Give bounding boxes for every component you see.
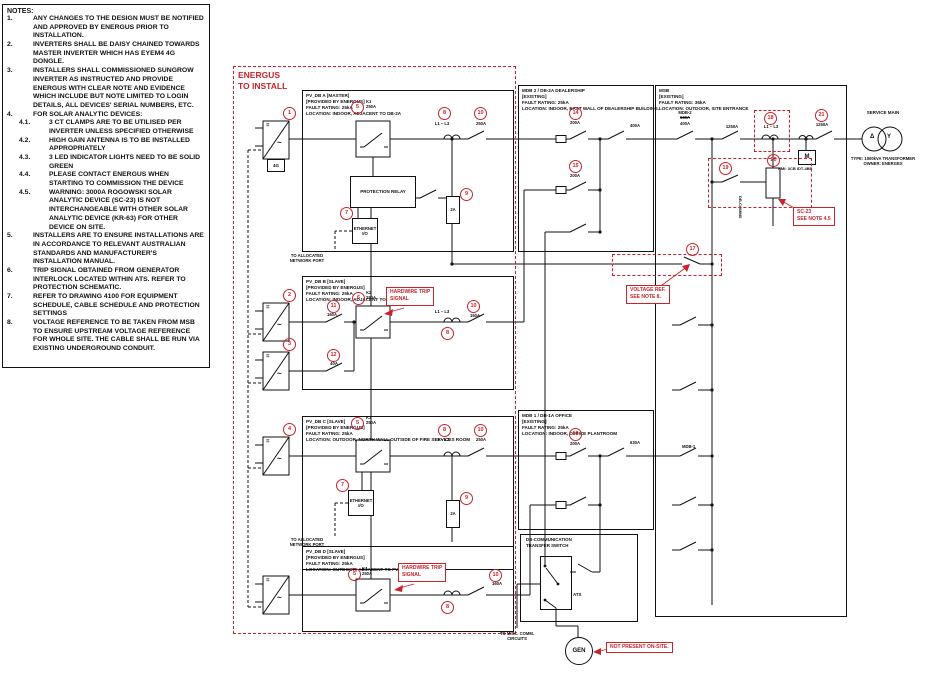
cable-tag: 8 (438, 424, 451, 437)
switch-amp-label: 250A (470, 121, 492, 126)
cable-tag: 6 (352, 292, 365, 305)
note-text: INVERTERS SHALL BE DAISY CHAINED TOWARDS… (33, 41, 205, 67)
dc-glyph: = (266, 354, 270, 360)
note-text: VOLTAGE REFERENCE TO BE TAKEN FROM MSB T… (33, 319, 205, 354)
ethernet-io-box: ETHERNET I/O (348, 490, 374, 516)
cable-tag: 5 (348, 568, 361, 581)
board-location: LOCATION: INDOOR, EAST WALL OF DEALERSHI… (522, 106, 659, 112)
wye-winding-glyph: Y (887, 134, 891, 140)
ac-glyph: ~ (277, 593, 282, 602)
ats-inner-box (540, 556, 572, 610)
ethernet-io-box: ETHERNET I/O (352, 218, 378, 244)
note-text: ANY CHANGES TO THE DESIGN MUST BE NOTIFI… (33, 15, 205, 41)
switch-amp-label: 160A (464, 313, 486, 318)
voltage-ref-callout: VOLTAGE REF.SEE NOTE 8. (626, 285, 670, 304)
switch-amp-label: 160A (486, 581, 508, 586)
hardwire-trip-callout: HARDWIRE TRIPSIGNAL (386, 287, 434, 306)
note-row: 2.INVERTERS SHALL BE DAISY CHAINED TOWAR… (7, 41, 205, 67)
ats-label: ATS (573, 592, 581, 598)
cable-tag: 14 (569, 107, 582, 120)
cable-tag: 7 (336, 479, 349, 492)
aux-fuse-box: 2A (446, 500, 460, 528)
cable-tag: 9 (460, 492, 473, 505)
ct-label: L1 – L3 (430, 309, 454, 314)
note-number: 7. (7, 293, 33, 319)
note-number: 4. (7, 111, 33, 120)
cable-tag: 5 (351, 417, 364, 430)
cable-tag: 10 (474, 424, 487, 437)
switch-amp-label: 160A (321, 312, 343, 317)
note-number: 4.2. (19, 137, 49, 154)
note-text: INSTALLERS ARE TO ENSURE INSTALLATIONS A… (33, 232, 205, 267)
cable-tag: 16 (569, 428, 582, 441)
ct-label: L1 – L3 (430, 121, 454, 126)
note-row: 7.REFER TO DRAWING 4100 FOR EQUIPMENT SC… (7, 293, 205, 319)
note-text: TRIP SIGNAL OBTAINED FROM GENERATOR INTE… (33, 267, 205, 293)
mdb2-header: MDB 2 / DB-2A DEALERSHIP [EXISTING] FAUL… (522, 88, 659, 112)
note-text: HIGH GAIN ANTENNA IS TO BE INSTALLED APP… (49, 137, 205, 154)
4g-dongle: 4G (267, 159, 285, 172)
ac-glyph: ~ (277, 320, 282, 329)
note-row: 6.TRIP SIGNAL OBTAINED FROM GENERATOR IN… (7, 267, 205, 293)
fuse-amp-label: 200A (564, 441, 586, 446)
cable-tag: 15 (569, 160, 582, 173)
note-number: 8. (7, 319, 33, 354)
note-text: FOR SOLAR ANALYTIC DEVICES: (33, 111, 205, 120)
sc23-ct-highlight (754, 110, 790, 152)
fuse-amp-label: 200A (564, 120, 586, 125)
notes-list: 1.ANY CHANGES TO THE DESIGN MUST BE NOTI… (7, 15, 205, 354)
switch-amp-label: 250A (470, 437, 492, 442)
note-number: 2. (7, 41, 33, 67)
cable-tag: 4 (283, 423, 296, 436)
service-main-label: SERVICE MAIN (850, 110, 916, 116)
generator-symbol: GEN (565, 637, 593, 665)
transfer-switch-label: DB-COMMUNICATIONTRANSFER SWITCH (526, 537, 572, 548)
note-number: 1. (7, 15, 33, 41)
ac-glyph: ~ (277, 138, 282, 147)
sc23-callout: SC-23SEE NOTE 4.5 (793, 207, 835, 226)
note-number: 3. (7, 67, 33, 110)
protection-relay-box: PROTECTION RELAY (350, 176, 416, 208)
note-row: 4.5.WARNING: 3000A ROGOWSKI SOLAR ANALYT… (7, 189, 205, 232)
note-number: 4.3. (19, 154, 49, 171)
contactor-label: K2250A (366, 290, 376, 301)
dc-glyph: = (266, 439, 270, 445)
fuse-amp-label: 200A (564, 173, 586, 178)
ac-glyph: ~ (277, 454, 282, 463)
contactor-label: K4250A (362, 566, 372, 577)
contactor-label: K1250A (366, 99, 376, 110)
note-row: 3.INSTALLERS SHALL COMMISSIONED SUNGROW … (7, 67, 205, 110)
note-text: PLEASE CONTACT ENERGUS WHEN STARTING TO … (49, 171, 205, 188)
cable-tag: 7 (340, 207, 353, 220)
note-text: REFER TO DRAWING 4100 FOR EQUIPMENT SCHE… (33, 293, 205, 319)
dc-glyph: = (266, 305, 270, 311)
note-row: 4.FOR SOLAR ANALYTIC DEVICES: (7, 111, 205, 120)
cable-tag: 8 (438, 107, 451, 120)
notes-title: NOTES: (7, 8, 205, 15)
cable-tag: 9 (460, 188, 473, 201)
note-number: 4.5. (19, 189, 49, 232)
transformer-note: TYPE: 1000kVA TRANSFORMEROWNER: ENERGEX (826, 156, 940, 167)
energus-install-label: ENERGUS TO INSTALL (238, 70, 287, 91)
dc-glyph: = (266, 123, 270, 129)
note-number: 4.4. (19, 171, 49, 188)
note-row: 1.ANY CHANGES TO THE DESIGN MUST BE NOTI… (7, 15, 205, 41)
note-row: 4.4.PLEASE CONTACT ENERGUS WHEN STARTING… (7, 171, 205, 188)
cable-tag: 10 (474, 107, 487, 120)
cable-tag: 8 (441, 601, 454, 614)
note-row: 8.VOLTAGE REFERENCE TO BE TAKEN FROM MSB… (7, 319, 205, 354)
notes-panel: NOTES: 1.ANY CHANGES TO THE DESIGN MUST … (2, 4, 210, 368)
network-port-note: TO ALLOCATEDNETWORK PORT (282, 253, 332, 264)
note-number: 5. (7, 232, 33, 267)
ct-label: L1 – L3 (430, 437, 454, 442)
transformer-symbol (862, 127, 902, 151)
cable-tag: 3 (283, 338, 296, 351)
note-row: 4.3.3 LED INDICATOR LIGHTS NEED TO BE SO… (7, 154, 205, 171)
cable-tag: 1 (283, 107, 296, 120)
voltage-ref-highlight (612, 254, 722, 276)
mdb1-feeder-label: MDB-1 (682, 444, 695, 449)
note-row: 4.2.HIGH GAIN ANTENNA IS TO BE INSTALLED… (7, 137, 205, 154)
note-text: 3 LED INDICATOR LIGHTS NEED TO BE SOLID … (49, 154, 205, 171)
note-number: 6. (7, 267, 33, 293)
contactor-label: K3250A (366, 415, 376, 426)
network-port-note: TO ALLOCATEDNETWORK PORT (282, 537, 332, 548)
switch-amp-label: 400A (622, 123, 648, 128)
misc-comms-note: TO MISC. COMM.CIRCUITS (490, 631, 544, 642)
aux-fuse-box: 2A (446, 196, 460, 224)
hardwire-trip-callout: HARDWIRE TRIPSIGNAL (398, 563, 446, 582)
note-number: 4.1. (19, 119, 49, 136)
switch-amp-label: 40A (323, 361, 345, 366)
switch-amp-label: 630A (622, 440, 648, 445)
cable-tag: 8 (441, 327, 454, 340)
sc23-device-highlight (708, 158, 812, 208)
main-switch-amp-label: 1250A (808, 122, 836, 127)
note-text: WARNING: 3000A ROGOWSKI SOLAR ANALYTIC D… (49, 189, 205, 232)
cable-tag: 10 (467, 300, 480, 313)
note-row: 5.INSTALLERS ARE TO ENSURE INSTALLATIONS… (7, 232, 205, 267)
mdb2-feeder-label: MDB-2 630A 400A (670, 110, 700, 126)
not-present-callout: NOT PRESENT ON-SITE. (606, 642, 673, 653)
msb-header: MSB [EXISTING] FAULT RATING: 36kA LOCATI… (659, 88, 749, 112)
cable-tag: 5 (351, 101, 364, 114)
cable-tag: 2 (283, 289, 296, 302)
single-line-diagram: NOTES: 1.ANY CHANGES TO THE DESIGN MUST … (0, 0, 950, 678)
cable-tag: 21 (815, 109, 828, 122)
note-text: 3 CT CLAMPS ARE TO BE UTILISED PER INVER… (49, 119, 205, 136)
delta-winding-glyph: Δ (870, 134, 874, 140)
note-row: 4.1.3 CT CLAMPS ARE TO BE UTILISED PER I… (7, 119, 205, 136)
note-text: INSTALLERS SHALL COMMISSIONED SUNGROW IN… (33, 67, 205, 110)
isolator-amp-label: 1250A (718, 124, 746, 129)
ac-glyph: ~ (277, 369, 282, 378)
dc-glyph: = (266, 578, 270, 584)
